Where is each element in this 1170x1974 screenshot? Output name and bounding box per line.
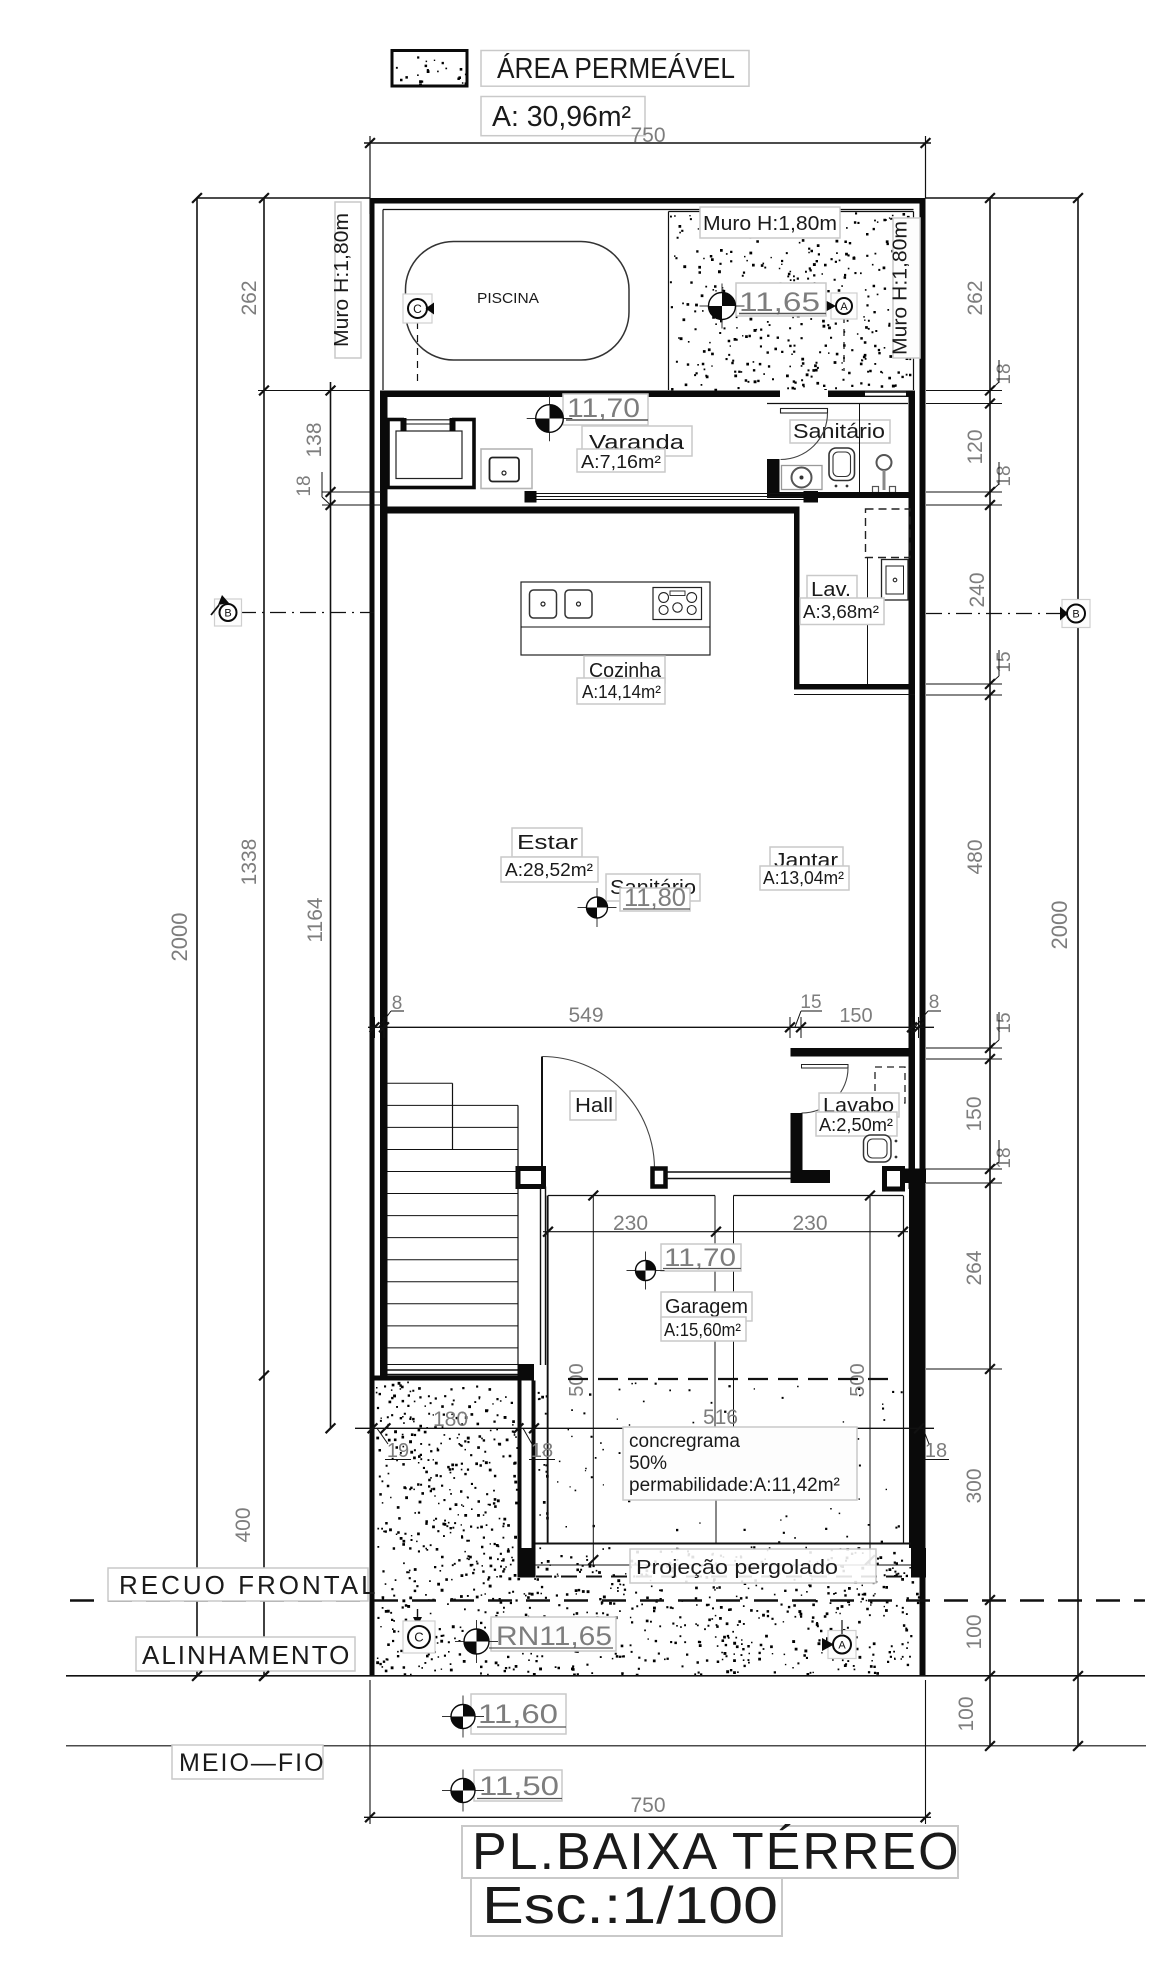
svg-text:Muro H:1,80m: Muro H:1,80m bbox=[703, 213, 837, 235]
svg-text:18: 18 bbox=[531, 1440, 553, 1462]
svg-text:262: 262 bbox=[964, 280, 987, 315]
svg-text:Muro H:1,80m: Muro H:1,80m bbox=[890, 221, 912, 355]
svg-text:11,70: 11,70 bbox=[567, 393, 640, 423]
svg-text:PISCINA: PISCINA bbox=[477, 290, 539, 307]
svg-text:A:7,16m²: A:7,16m² bbox=[581, 452, 661, 472]
svg-text:Muro H:1,80m: Muro H:1,80m bbox=[331, 213, 353, 347]
svg-text:permabilidade:A:11,42m²: permabilidade:A:11,42m² bbox=[629, 1475, 840, 1496]
svg-text:ALINHAMENTO: ALINHAMENTO bbox=[142, 1640, 351, 1670]
svg-text:Hall: Hall bbox=[575, 1095, 613, 1117]
svg-text:480: 480 bbox=[964, 839, 987, 874]
svg-text:A:2,50m²: A:2,50m² bbox=[819, 1115, 893, 1135]
svg-text:50%: 50% bbox=[629, 1453, 667, 1474]
svg-text:230: 230 bbox=[792, 1212, 827, 1235]
svg-text:RECUO FRONTAL: RECUO FRONTAL bbox=[119, 1570, 379, 1600]
svg-text:Estar: Estar bbox=[517, 832, 578, 854]
svg-text:11,65: 11,65 bbox=[739, 287, 820, 317]
svg-text:A: 30,96m²: A: 30,96m² bbox=[492, 101, 631, 133]
svg-text:11,80: 11,80 bbox=[624, 884, 686, 912]
svg-text:19: 19 bbox=[387, 1440, 409, 1462]
svg-text:180: 180 bbox=[433, 1408, 468, 1431]
svg-text:120: 120 bbox=[964, 429, 987, 464]
svg-text:Projeção pergolado: Projeção pergolado bbox=[636, 1557, 838, 1579]
svg-text:MEIO—FIO: MEIO—FIO bbox=[179, 1749, 326, 1777]
svg-text:PL.BAIXA TÉRREO: PL.BAIXA TÉRREO bbox=[472, 1823, 961, 1881]
svg-text:150: 150 bbox=[839, 1005, 872, 1027]
svg-text:8: 8 bbox=[929, 992, 940, 1013]
svg-text:750: 750 bbox=[630, 124, 665, 147]
svg-text:11,70: 11,70 bbox=[664, 1244, 736, 1272]
svg-text:516: 516 bbox=[703, 1406, 738, 1429]
svg-text:11,60: 11,60 bbox=[478, 1699, 558, 1729]
svg-text:262: 262 bbox=[238, 280, 261, 315]
svg-text:A: A bbox=[840, 301, 848, 313]
svg-text:2000: 2000 bbox=[1047, 901, 1072, 950]
svg-text:18: 18 bbox=[294, 475, 315, 496]
svg-text:Garagem: Garagem bbox=[665, 1296, 748, 1318]
svg-text:150: 150 bbox=[963, 1096, 986, 1131]
svg-text:C: C bbox=[413, 302, 422, 316]
svg-text:100: 100 bbox=[963, 1614, 986, 1649]
svg-text:11,50: 11,50 bbox=[479, 1771, 559, 1801]
svg-text:concregrama: concregrama bbox=[629, 1431, 740, 1452]
svg-text:138: 138 bbox=[303, 422, 326, 457]
svg-text:A:14,14m²: A:14,14m² bbox=[582, 682, 661, 702]
svg-text:15: 15 bbox=[994, 1012, 1015, 1033]
svg-text:A:3,68m²: A:3,68m² bbox=[803, 602, 879, 622]
svg-text:750: 750 bbox=[630, 1794, 665, 1817]
svg-text:A:28,52m²: A:28,52m² bbox=[505, 860, 593, 880]
svg-text:100: 100 bbox=[955, 1696, 978, 1731]
svg-text:2000: 2000 bbox=[167, 913, 192, 962]
svg-text:B: B bbox=[1072, 608, 1079, 620]
svg-text:ÁREA PERMEÁVEL: ÁREA PERMEÁVEL bbox=[497, 52, 735, 85]
svg-text:300: 300 bbox=[963, 1468, 986, 1503]
svg-text:18: 18 bbox=[994, 465, 1015, 486]
svg-text:A:15,60m²: A:15,60m² bbox=[664, 1320, 741, 1340]
svg-text:A:13,04m²: A:13,04m² bbox=[763, 868, 844, 888]
svg-text:15: 15 bbox=[800, 992, 821, 1013]
svg-text:Esc.:1/100: Esc.:1/100 bbox=[482, 1877, 778, 1935]
svg-text:1164: 1164 bbox=[304, 897, 327, 942]
svg-text:240: 240 bbox=[966, 572, 989, 607]
svg-text:Sanitário: Sanitário bbox=[793, 421, 885, 443]
svg-text:400: 400 bbox=[232, 1507, 255, 1542]
svg-text:18: 18 bbox=[994, 363, 1015, 384]
svg-text:230: 230 bbox=[613, 1212, 648, 1235]
svg-text:C: C bbox=[414, 1630, 423, 1645]
svg-text:A: A bbox=[838, 1639, 846, 1651]
svg-text:549: 549 bbox=[568, 1004, 603, 1027]
svg-text:1338: 1338 bbox=[238, 839, 261, 886]
svg-text:15: 15 bbox=[994, 651, 1015, 672]
svg-text:B: B bbox=[224, 607, 231, 619]
svg-text:18: 18 bbox=[994, 1147, 1015, 1168]
svg-text:RN11,65: RN11,65 bbox=[496, 1621, 612, 1651]
svg-text:264: 264 bbox=[963, 1250, 986, 1285]
